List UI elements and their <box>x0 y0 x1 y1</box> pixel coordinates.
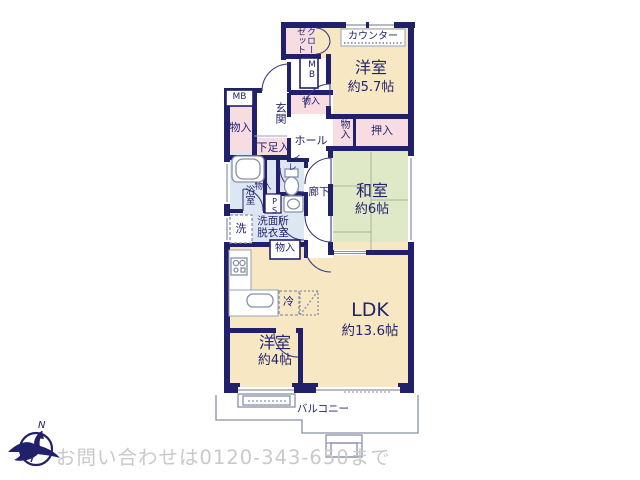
western57-size: 約5.7帖 <box>333 80 409 96</box>
pipe-space-label: PS <box>266 197 278 214</box>
meter-box-2-label: MB <box>226 91 253 104</box>
shoe-box-label: 下足入 <box>255 141 291 154</box>
japanese-room-size: 約6帖 <box>341 202 403 217</box>
contact-watermark: お問い合わせは0120-343-650まで <box>56 448 391 468</box>
washroom-label-2: 脱衣室 <box>251 228 295 240</box>
counter-label: カウンター <box>342 31 404 44</box>
entrance-label: 玄関 <box>272 102 286 136</box>
oshiire-label: 押入 <box>358 124 406 138</box>
western4-size: 約4帖 <box>243 354 307 368</box>
meter-box-label: MB <box>303 60 316 88</box>
japanese-room-name: 和室 <box>341 182 403 201</box>
western57-name: 洋室 <box>333 58 409 78</box>
ldk-size: 約13.6帖 <box>326 324 414 339</box>
front-door-arc <box>262 64 289 91</box>
storage-box-label: 物入 <box>271 243 299 255</box>
ldk-name: LDK <box>330 300 410 321</box>
western4-name: 洋室 <box>240 334 310 352</box>
storage-left-label: 物入 <box>226 121 255 135</box>
toilet-label: トイレ <box>280 159 305 169</box>
compass-north-label: N <box>38 421 45 432</box>
balcony-label: バルコニー <box>294 404 352 416</box>
storage-bath-label: 物入 <box>249 182 277 192</box>
compass-icon <box>8 431 60 465</box>
storage-hall-label: 物入 <box>294 97 328 108</box>
kitchen-sink-icon <box>247 294 273 307</box>
closet-label: クローゼット <box>286 27 314 57</box>
laundry-label: 洗 <box>233 222 249 235</box>
hall-label: ホール <box>289 134 333 147</box>
corridor-label: 廊下 <box>305 187 333 199</box>
fridge-label: 冷 <box>281 295 296 308</box>
floorplan-page: カウンター クローゼット MB MB 物入 玄関 物入 ホール 下足入 物入 押… <box>0 0 640 480</box>
storage-side-label: 物入 <box>335 119 349 149</box>
